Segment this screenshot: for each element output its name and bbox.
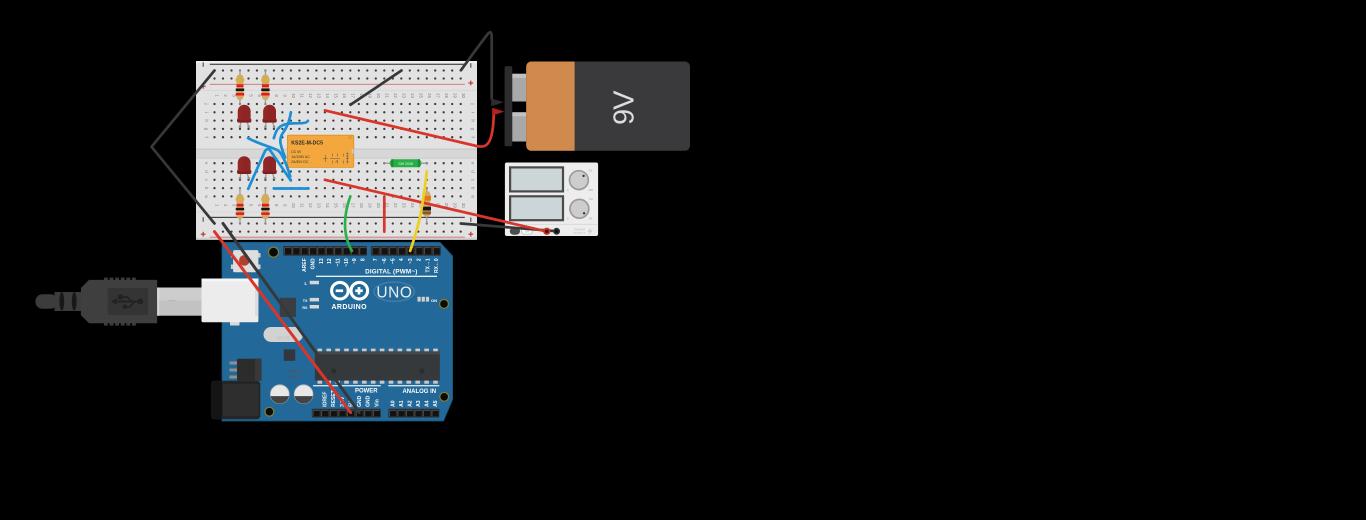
svg-text:~10: ~10: [344, 258, 350, 267]
svg-text:DIGITAL (PWM~): DIGITAL (PWM~): [365, 269, 417, 276]
svg-text:4: 4: [399, 258, 405, 261]
svg-text:14: 14: [325, 93, 330, 98]
svg-text:30: 30: [461, 93, 466, 98]
svg-text:e: e: [204, 162, 209, 165]
svg-text:~9: ~9: [352, 258, 358, 264]
svg-text:d: d: [204, 170, 209, 173]
svg-text:2A/30V DC: 2A/30V DC: [291, 160, 309, 164]
svg-text:TX→1: TX→1: [425, 258, 431, 272]
svg-text:SPC35: SPC35: [277, 335, 291, 340]
svg-text:A1: A1: [399, 400, 405, 407]
svg-text:7: 7: [373, 258, 379, 261]
svg-text:20: 20: [376, 203, 381, 208]
svg-text:GND: GND: [310, 258, 316, 270]
svg-text:h: h: [471, 119, 476, 122]
svg-text:12: 12: [308, 93, 313, 98]
svg-text:15: 15: [334, 203, 339, 208]
svg-text:9V: 9V: [609, 90, 641, 125]
svg-text:23: 23: [401, 203, 406, 208]
svg-text:A5: A5: [433, 400, 439, 407]
svg-text:a: a: [204, 195, 209, 198]
svg-text:a: a: [471, 195, 476, 198]
svg-text:~5: ~5: [391, 258, 397, 264]
svg-text:GND: GND: [357, 395, 363, 407]
svg-text:g: g: [204, 128, 209, 131]
svg-text:0 K: 0 K: [589, 169, 593, 173]
svg-text:12: 12: [327, 258, 333, 264]
svg-text:0 A: 0 A: [589, 197, 593, 201]
svg-text:2: 2: [417, 258, 423, 261]
svg-text:24: 24: [410, 93, 415, 98]
svg-text:ARDUINO: ARDUINO: [331, 304, 367, 311]
svg-text:L: L: [304, 281, 307, 286]
svg-text:10: 10: [291, 203, 296, 208]
svg-text:10: 10: [291, 93, 296, 98]
svg-text:SUPPLY: SUPPLY: [574, 231, 586, 235]
svg-text:POWER: POWER: [355, 389, 378, 395]
svg-text:A4: A4: [424, 400, 430, 407]
svg-text:j: j: [204, 102, 209, 104]
svg-text:~6: ~6: [382, 258, 388, 264]
svg-text:DC 5V: DC 5V: [291, 150, 302, 154]
svg-text:UNO: UNO: [376, 284, 412, 301]
svg-text:28: 28: [444, 93, 449, 98]
svg-text:13: 13: [317, 203, 322, 208]
svg-text:12: 12: [308, 203, 313, 208]
svg-text:IOREF: IOREF: [323, 392, 329, 407]
svg-text:16: 16: [342, 93, 347, 98]
svg-text:~3: ~3: [408, 258, 414, 264]
svg-text:21: 21: [385, 93, 390, 98]
svg-text:11: 11: [300, 203, 305, 208]
svg-text:24: 24: [410, 203, 415, 208]
svg-text:e: e: [471, 162, 476, 165]
svg-text:18: 18: [359, 203, 364, 208]
svg-text:25: 25: [418, 93, 423, 98]
svg-text:RX: RX: [302, 306, 308, 310]
svg-text:ON: ON: [431, 298, 437, 303]
svg-text:i: i: [204, 112, 209, 113]
svg-text:30: 30: [461, 203, 466, 208]
svg-text:j: j: [471, 102, 476, 104]
svg-text:i: i: [471, 112, 476, 113]
svg-text:RX←0: RX←0: [434, 258, 440, 273]
svg-text:26: 26: [427, 93, 432, 98]
svg-text:17: 17: [351, 203, 356, 208]
svg-text:20: 20: [376, 93, 381, 98]
svg-text:1A/125V AC: 1A/125V AC: [291, 155, 310, 159]
svg-text:13: 13: [317, 93, 322, 98]
svg-text:A0: A0: [390, 400, 396, 407]
svg-text:22: 22: [393, 93, 398, 98]
svg-text:17: 17: [351, 93, 356, 98]
svg-text:ANALOG IN: ANALOG IN: [402, 389, 436, 395]
svg-text:14: 14: [325, 203, 330, 208]
svg-text:22: 22: [393, 203, 398, 208]
svg-text:29: 29: [452, 93, 457, 98]
svg-text:d: d: [471, 170, 476, 173]
svg-text:2A: 2A: [589, 217, 592, 221]
svg-text:g: g: [471, 128, 476, 131]
svg-text:13: 13: [319, 258, 325, 264]
svg-text:GND: GND: [366, 395, 372, 407]
svg-text:27: 27: [435, 93, 440, 98]
svg-text:30V: 30V: [589, 188, 594, 192]
svg-text:SW 2008: SW 2008: [398, 162, 413, 166]
svg-text:29: 29: [452, 203, 457, 208]
svg-text:KS2E-M-DC5: KS2E-M-DC5: [291, 141, 323, 147]
svg-text:TX: TX: [303, 299, 308, 303]
svg-text:19: 19: [368, 203, 373, 208]
svg-text:Vin: Vin: [374, 399, 380, 407]
svg-text:11: 11: [300, 93, 305, 98]
svg-text:A2: A2: [407, 400, 413, 407]
svg-text:23: 23: [401, 93, 406, 98]
svg-text:h: h: [204, 119, 209, 122]
svg-text:b: b: [471, 187, 476, 190]
svg-text:15: 15: [334, 93, 339, 98]
svg-text:AREF: AREF: [302, 258, 308, 272]
svg-text:b: b: [204, 187, 209, 190]
svg-text:A3: A3: [416, 400, 422, 407]
svg-text:~11: ~11: [336, 258, 342, 266]
svg-text:8: 8: [361, 258, 367, 261]
